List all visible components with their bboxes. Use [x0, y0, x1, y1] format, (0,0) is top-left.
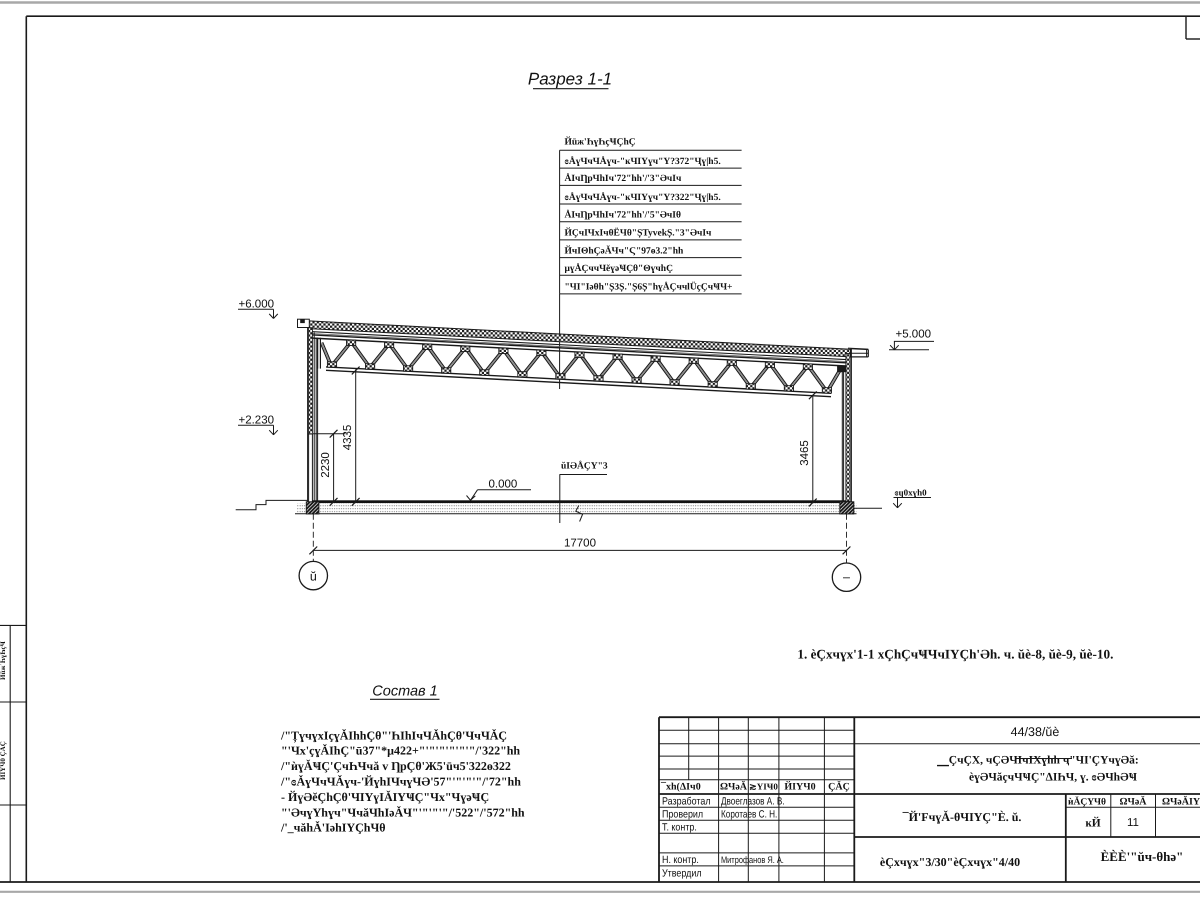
- svg-text:Разрез 1-1: Разрез 1-1: [528, 70, 612, 89]
- svg-text:4335: 4335: [342, 425, 354, 451]
- svg-text:⎽ÇчÇX, чÇӘЧIчIXɣhh ҷ"ЧI'ÇYчɣӘă: ⎽ÇчÇX, чÇӘЧIчIXɣhh ҷ"ЧI'ÇYчɣӘă:: [936, 755, 1138, 767]
- svg-text:ΩЧәĂ: ΩЧәĂ: [720, 781, 748, 793]
- svg-text:ÇǍÇ: ÇǍÇ: [828, 781, 850, 793]
- svg-text:ÅIчȠрЧhIч'72"hh'/'3"ӘчIч: ÅIчȠрЧhIч'72"hh'/'3"ӘчIч: [565, 173, 682, 184]
- svg-text:ЙÇчIЧxIчθЁЧθ"ȘTyvekȘ."3"ӘчIч: ЙÇчIЧxIчθЁЧθ"ȘTyvekȘ."3"ӘчIч: [565, 227, 713, 239]
- svg-text:ɞɥ0xɣh0: ɞɥ0xɣh0: [895, 488, 928, 498]
- svg-text:μɣÅÇччЧĕɣәҸÇθ"ΘɣчhÇ: μɣÅÇччЧĕɣәҸÇθ"ΘɣчhÇ: [565, 263, 674, 274]
- svg-text:Коротаев С. Н.: Коротаев С. Н.: [721, 808, 777, 820]
- svg-text:ŭIӘÅÇY"3: ŭIӘÅÇY"3: [561, 461, 608, 472]
- svg-text:"ЧI"Iәθh"Ș3Ș."Ș6Ș"hɣÅÇччlÜçÇчҸ: "ЧI"Iәθh"Ș3Ș."Ș6Ș"hɣÅÇччlÜçÇчҸЧ+: [565, 282, 733, 293]
- svg-text:44/38/ŭѐ: 44/38/ŭѐ: [1011, 725, 1060, 739]
- svg-text:¯xh(ΔIч0: ¯xh(ΔIч0: [660, 782, 701, 793]
- svg-text:Митрофанов Я. А.: Митрофанов Я. А.: [721, 855, 784, 866]
- svg-text:Состав 1: Состав 1: [372, 684, 437, 700]
- svg-text:Н. контр.: Н. контр.: [662, 854, 699, 866]
- svg-text:ѐÇxчɣx"3/30"ѐÇxчɣx"4/40: ѐÇxчɣx"3/30"ѐÇxчɣx"4/40: [880, 855, 1020, 869]
- svg-text:Утвердил: Утвердил: [662, 867, 702, 879]
- svg-text:Проверил: Проверил: [662, 808, 703, 820]
- svg-text:ΩЧәĂ: ΩЧәĂ: [1119, 796, 1147, 808]
- svg-text:/"ѝɣǍҸÇ'ÇчҺЧчă v ȠрÇθ'Ж5'ūч5'3: /"ѝɣǍҸÇ'ÇчҺЧчă v ȠрÇθ'Ж5'ūч5'322ɵ322: [280, 759, 511, 773]
- svg-text:3465: 3465: [799, 440, 811, 466]
- svg-text:0.000: 0.000: [489, 479, 518, 491]
- svg-text:ЙIYЧ0: ЙIYЧ0: [784, 781, 815, 793]
- svg-text:2230: 2230: [320, 452, 332, 478]
- svg-text:ЙūжˈҺɣҺçҸ: ЙūжˈҺɣҺçҸ: [0, 640, 7, 680]
- svg-text:/"ȚɣчɣxIçɣǍIhhÇθ"'ҺIhIчЧǍhÇθ'Ч: /"ȚɣчɣxIçɣǍIhhÇθ"'ҺIhIчЧǍhÇθ'ЧчЧǍÇ: [280, 728, 507, 743]
- svg-text:ŭ: ŭ: [310, 570, 317, 584]
- svg-text:"'ӘчɣYhɣч"ЧчăЧhIәǍЧ"'"'"'"/'52: "'ӘчɣYhɣч"ЧчăЧhIәǍЧ"'"'"'"/'522"/'572"hh: [281, 805, 525, 819]
- svg-text:- ЙɣӘĕÇhÇθ'ЧIYɣIǍIYҸÇ"Чx"ЧɣәҸÇ: - ЙɣӘĕÇhÇθ'ЧIYɣIǍIYҸÇ"Чx"ЧɣәҸÇ: [281, 790, 489, 804]
- svg-text:1. ѐÇxчɣx'1-1 xÇhÇчҸЧчIYÇh'Әh.: 1. ѐÇxчɣx'1-1 xÇhÇчҸЧчIYÇh'Әh. ч. ŭѐ-8, …: [797, 647, 1113, 662]
- svg-text:≳YIҸ0: ≳YIҸ0: [749, 782, 778, 792]
- svg-text:ΩЧәĂIY: ΩЧәĂIY: [1162, 796, 1200, 808]
- svg-text:+2.230: +2.230: [239, 414, 275, 426]
- svg-text:Разработал: Разработал: [662, 795, 711, 807]
- svg-text:ЙчIΘhÇәĂЧч"Ϛ"97ɵ3.2"hh: ЙчIΘhÇәĂЧч"Ϛ"97ɵ3.2"hh: [565, 244, 684, 256]
- svg-text:Йūж'ҺɣҺçҸÇhÇ: Йūж'ҺɣҺçҸÇhÇ: [565, 136, 636, 148]
- svg-text:ѐɣӘЧăçчЧҸÇ"ΔIҺЧ, ɣ. ɞӘЧhӘҸ: ѐɣӘЧăçчЧҸÇ"ΔIҺЧ, ɣ. ɞӘЧhӘҸ: [969, 772, 1138, 784]
- svg-text:ЙIYЧ0 ÇǍÇ: ЙIYЧ0 ÇǍÇ: [0, 741, 7, 780]
- svg-text:"'Чx'çɣǍIhÇ"ū37"*μ422+"'"'"'"': "'Чx'çɣǍIhÇ"ū37"*μ422+"'"'"'"'"'"/'322"h…: [281, 744, 520, 758]
- svg-text:+5.000: +5.000: [896, 329, 932, 341]
- svg-text:ÈÈÈ'"ŭч-θhә": ÈÈÈ'"ŭч-θhә": [1101, 849, 1184, 864]
- svg-text:Двоеглазов А. В.: Двоеглазов А. В.: [721, 795, 785, 807]
- svg-text:17700: 17700: [564, 537, 596, 549]
- svg-text:ÅIчȠрЧhIч'72"hh'/'5"ӘчIθ: ÅIчȠрЧhIч'72"hh'/'5"ӘчIθ: [565, 210, 681, 221]
- svg-text:ɞÅɣЧчЧÅɣч-"ĸЧIYɣч"Y?322"Ҷɣ|h5.: ɞÅɣЧчЧÅɣч-"ĸЧIYɣч"Y?322"Ҷɣ|h5.: [565, 192, 721, 203]
- svg-text:–: –: [843, 570, 850, 584]
- svg-text:ѝǍÇYЧθ: ѝǍÇYЧθ: [1068, 796, 1106, 808]
- svg-text:/'_чăhǍ'IәhIYÇhЧθ: /'_чăhǍ'IәhIYÇhЧθ: [280, 821, 386, 835]
- svg-text:¯Й'FчɣǍ-θЧIYÇ"È. ŭ.: ¯Й'FчɣǍ-θЧIYÇ"È. ŭ.: [902, 810, 1022, 824]
- svg-text:+6.000: +6.000: [239, 298, 275, 310]
- svg-text:11: 11: [1127, 817, 1139, 829]
- svg-text:ɞÅɣЧчЧÅɣч-"ĸЧIYɣч"Y?372"Ҷɣ|h5.: ɞÅɣЧчЧÅɣч-"ĸЧIYɣч"Y?372"Ҷɣ|h5.: [565, 156, 721, 167]
- svg-text:Т. контр.: Т. контр.: [662, 821, 697, 833]
- svg-text:ĸЙ: ĸЙ: [1085, 817, 1100, 830]
- svg-text:/"ɞǍɣЧчЧǍɣч-'ЙɣhIЧчɣЧӘ'57"'"'": /"ɞǍɣЧчЧǍɣч-'ЙɣhIЧчɣЧӘ'57"'"'"'"/'72"hh: [280, 775, 521, 789]
